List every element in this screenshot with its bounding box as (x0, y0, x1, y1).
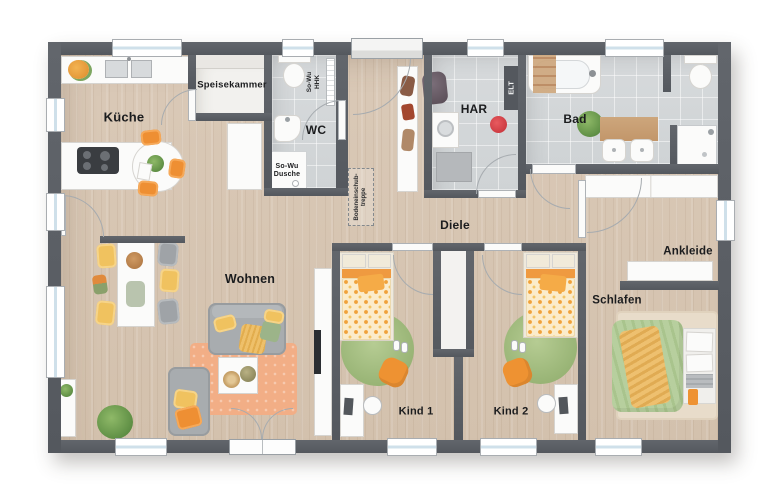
kind2-slipper-right (519, 342, 526, 353)
wc-shower-drain (292, 180, 299, 187)
niche-between-kind-rooms (441, 251, 466, 349)
window-bad-top (605, 39, 664, 57)
wall-pantry-bottom (188, 113, 272, 121)
window-kitchen-top (112, 39, 182, 57)
dining-chair-5 (157, 298, 180, 325)
shelf-plant (60, 384, 73, 397)
burner-2 (83, 162, 91, 170)
window-kitchen-left (46, 98, 65, 132)
window-wc-top (282, 39, 314, 57)
room-label-har: HAR (461, 103, 488, 117)
kind1-laptop (343, 398, 353, 416)
tub-faucet (589, 70, 596, 77)
wall-toilet-stub (663, 55, 671, 92)
table-plant (240, 366, 256, 382)
utility-box (436, 152, 472, 182)
front-door (351, 38, 423, 59)
tv-screen (314, 330, 321, 374)
palm-plant (97, 405, 133, 439)
kind1-duvet-fold (357, 273, 385, 292)
wall-wc-left (264, 55, 272, 196)
cooktop (77, 147, 119, 174)
wall-niche-left (433, 251, 441, 357)
dining-chair-4 (159, 268, 180, 292)
wall-har-bad (518, 55, 526, 198)
wall-har-bottom-right (516, 190, 526, 198)
entry-shoe-decor (401, 128, 415, 151)
terrace-door (229, 439, 296, 455)
ankleide-wardrobe (627, 261, 713, 281)
label-elt: ELT (507, 81, 516, 95)
room-label-diele: Diele (440, 219, 470, 233)
burner-3 (100, 151, 110, 161)
room-label-bad: Bad (563, 113, 586, 127)
wc-toilet-bowl (283, 63, 305, 88)
pantry-shelf (196, 55, 264, 69)
kind1-pillow-left (342, 254, 366, 268)
window-ankleide-right (716, 200, 735, 241)
kind2-pillow-left (526, 254, 550, 268)
wall-kind2-top (522, 243, 586, 251)
kitchen-chair-right (168, 158, 186, 179)
room-label-speisekammer: Speisekammer (197, 81, 266, 92)
kind2-duvet-fold (539, 274, 567, 293)
kitchen-faucet (127, 57, 131, 61)
kind1-chair (363, 396, 382, 415)
kitchen-sink-right (131, 60, 152, 78)
vacuum-decor (490, 116, 507, 133)
wall-kitchen-partial (100, 236, 185, 243)
wall-between-doors (433, 243, 484, 251)
kind2-laptop (558, 397, 568, 415)
window-kind2-bottom (480, 438, 537, 456)
dining-chair-3 (157, 241, 179, 267)
window-kind1-bottom (387, 438, 437, 456)
wc-radiator (326, 58, 335, 106)
wall-kind1-top (332, 243, 392, 251)
wall-pantry-left (188, 55, 196, 89)
kind2-slipper-left (511, 340, 518, 351)
wall-har-left (424, 55, 432, 198)
tub-ladder-decor (533, 55, 556, 93)
pineapple-decor (68, 60, 89, 79)
washer-drum (437, 120, 454, 137)
wc-sink-faucet (285, 117, 290, 122)
basin-drain-right (640, 148, 644, 152)
dining-greenery-decor (126, 281, 145, 307)
wall-niche-right (466, 251, 474, 357)
wall-kind1-kind2 (454, 357, 463, 440)
kind2-pillow-right (552, 254, 575, 268)
kind1-pillow-right (368, 254, 391, 268)
woven-bowl-decor (223, 371, 240, 388)
wall-ankleide-schlafen (620, 281, 719, 290)
burner-4 (101, 164, 108, 171)
entry-bag-decor-2 (401, 103, 415, 121)
kitchen-sink-left (105, 60, 128, 78)
bath-toilet-cistern (684, 55, 717, 64)
room-label-wohnen: Wohnen (225, 272, 275, 286)
window-wohnen-left (46, 286, 65, 378)
window-wohnen-bottom (115, 438, 167, 456)
kind2-door-leaf (484, 243, 522, 251)
burner-1 (83, 151, 91, 159)
room-label-kind1: Kind 1 (399, 406, 434, 419)
kitchen-chair-bottom (137, 180, 158, 197)
wall-wohnen-kind1 (332, 251, 340, 440)
wall-outer-right (718, 42, 731, 453)
wall-har-bottom-left (424, 190, 478, 198)
dining-chair-2 (95, 300, 116, 326)
bed-pillow-1 (686, 332, 714, 353)
wall-bad-bottom-right (576, 164, 719, 174)
label-so-wu-dusche: So-Wu Dusche (274, 163, 301, 179)
bed-pillow-2 (686, 354, 714, 373)
room-label-kueche: Küche (104, 111, 145, 126)
wall-kind2-schlafen (578, 243, 586, 440)
kind1-door-leaf (392, 243, 433, 251)
bed-throw-orange (688, 389, 698, 405)
wall-niche-bottom (433, 349, 474, 357)
schlafen-door-leaf (578, 180, 586, 238)
vanity-counter (600, 117, 658, 141)
label-bodeneinschubtreppe: Bodeneinschub- treppe (354, 173, 368, 220)
window-schlafen-bottom (595, 438, 642, 456)
bath-toilet-bowl (689, 64, 712, 89)
dining-side-decor (92, 274, 109, 295)
bed-throw-gray (686, 374, 713, 388)
shower-head (708, 129, 714, 135)
room-label-wc: WC (306, 124, 326, 138)
basin-drain-left (612, 148, 616, 152)
kitchen-chair-top (140, 129, 161, 146)
label-so-wu-hhk: So-Wu HHK (306, 72, 322, 92)
kind2-chair (537, 394, 556, 413)
floor-plan: Küche Speisekammer WC So-Wu HHK So-Wu Du… (0, 0, 775, 497)
dining-chair-1 (96, 243, 117, 268)
kind1-slipper-right (401, 342, 408, 353)
kind1-slipper-left (393, 340, 400, 351)
room-label-ankleide: Ankleide (663, 245, 713, 258)
shower-drain (702, 152, 707, 157)
wall-wc-bottom (264, 188, 348, 196)
dining-bowl-decor (126, 252, 143, 269)
room-label-kind2: Kind 2 (494, 406, 529, 419)
window-dining-left (46, 193, 65, 231)
room-label-schlafen: Schlafen (592, 294, 642, 307)
window-har-top (467, 39, 504, 57)
wall-shower-stub (670, 125, 677, 166)
kitchen-tall-cabinet (227, 123, 262, 190)
